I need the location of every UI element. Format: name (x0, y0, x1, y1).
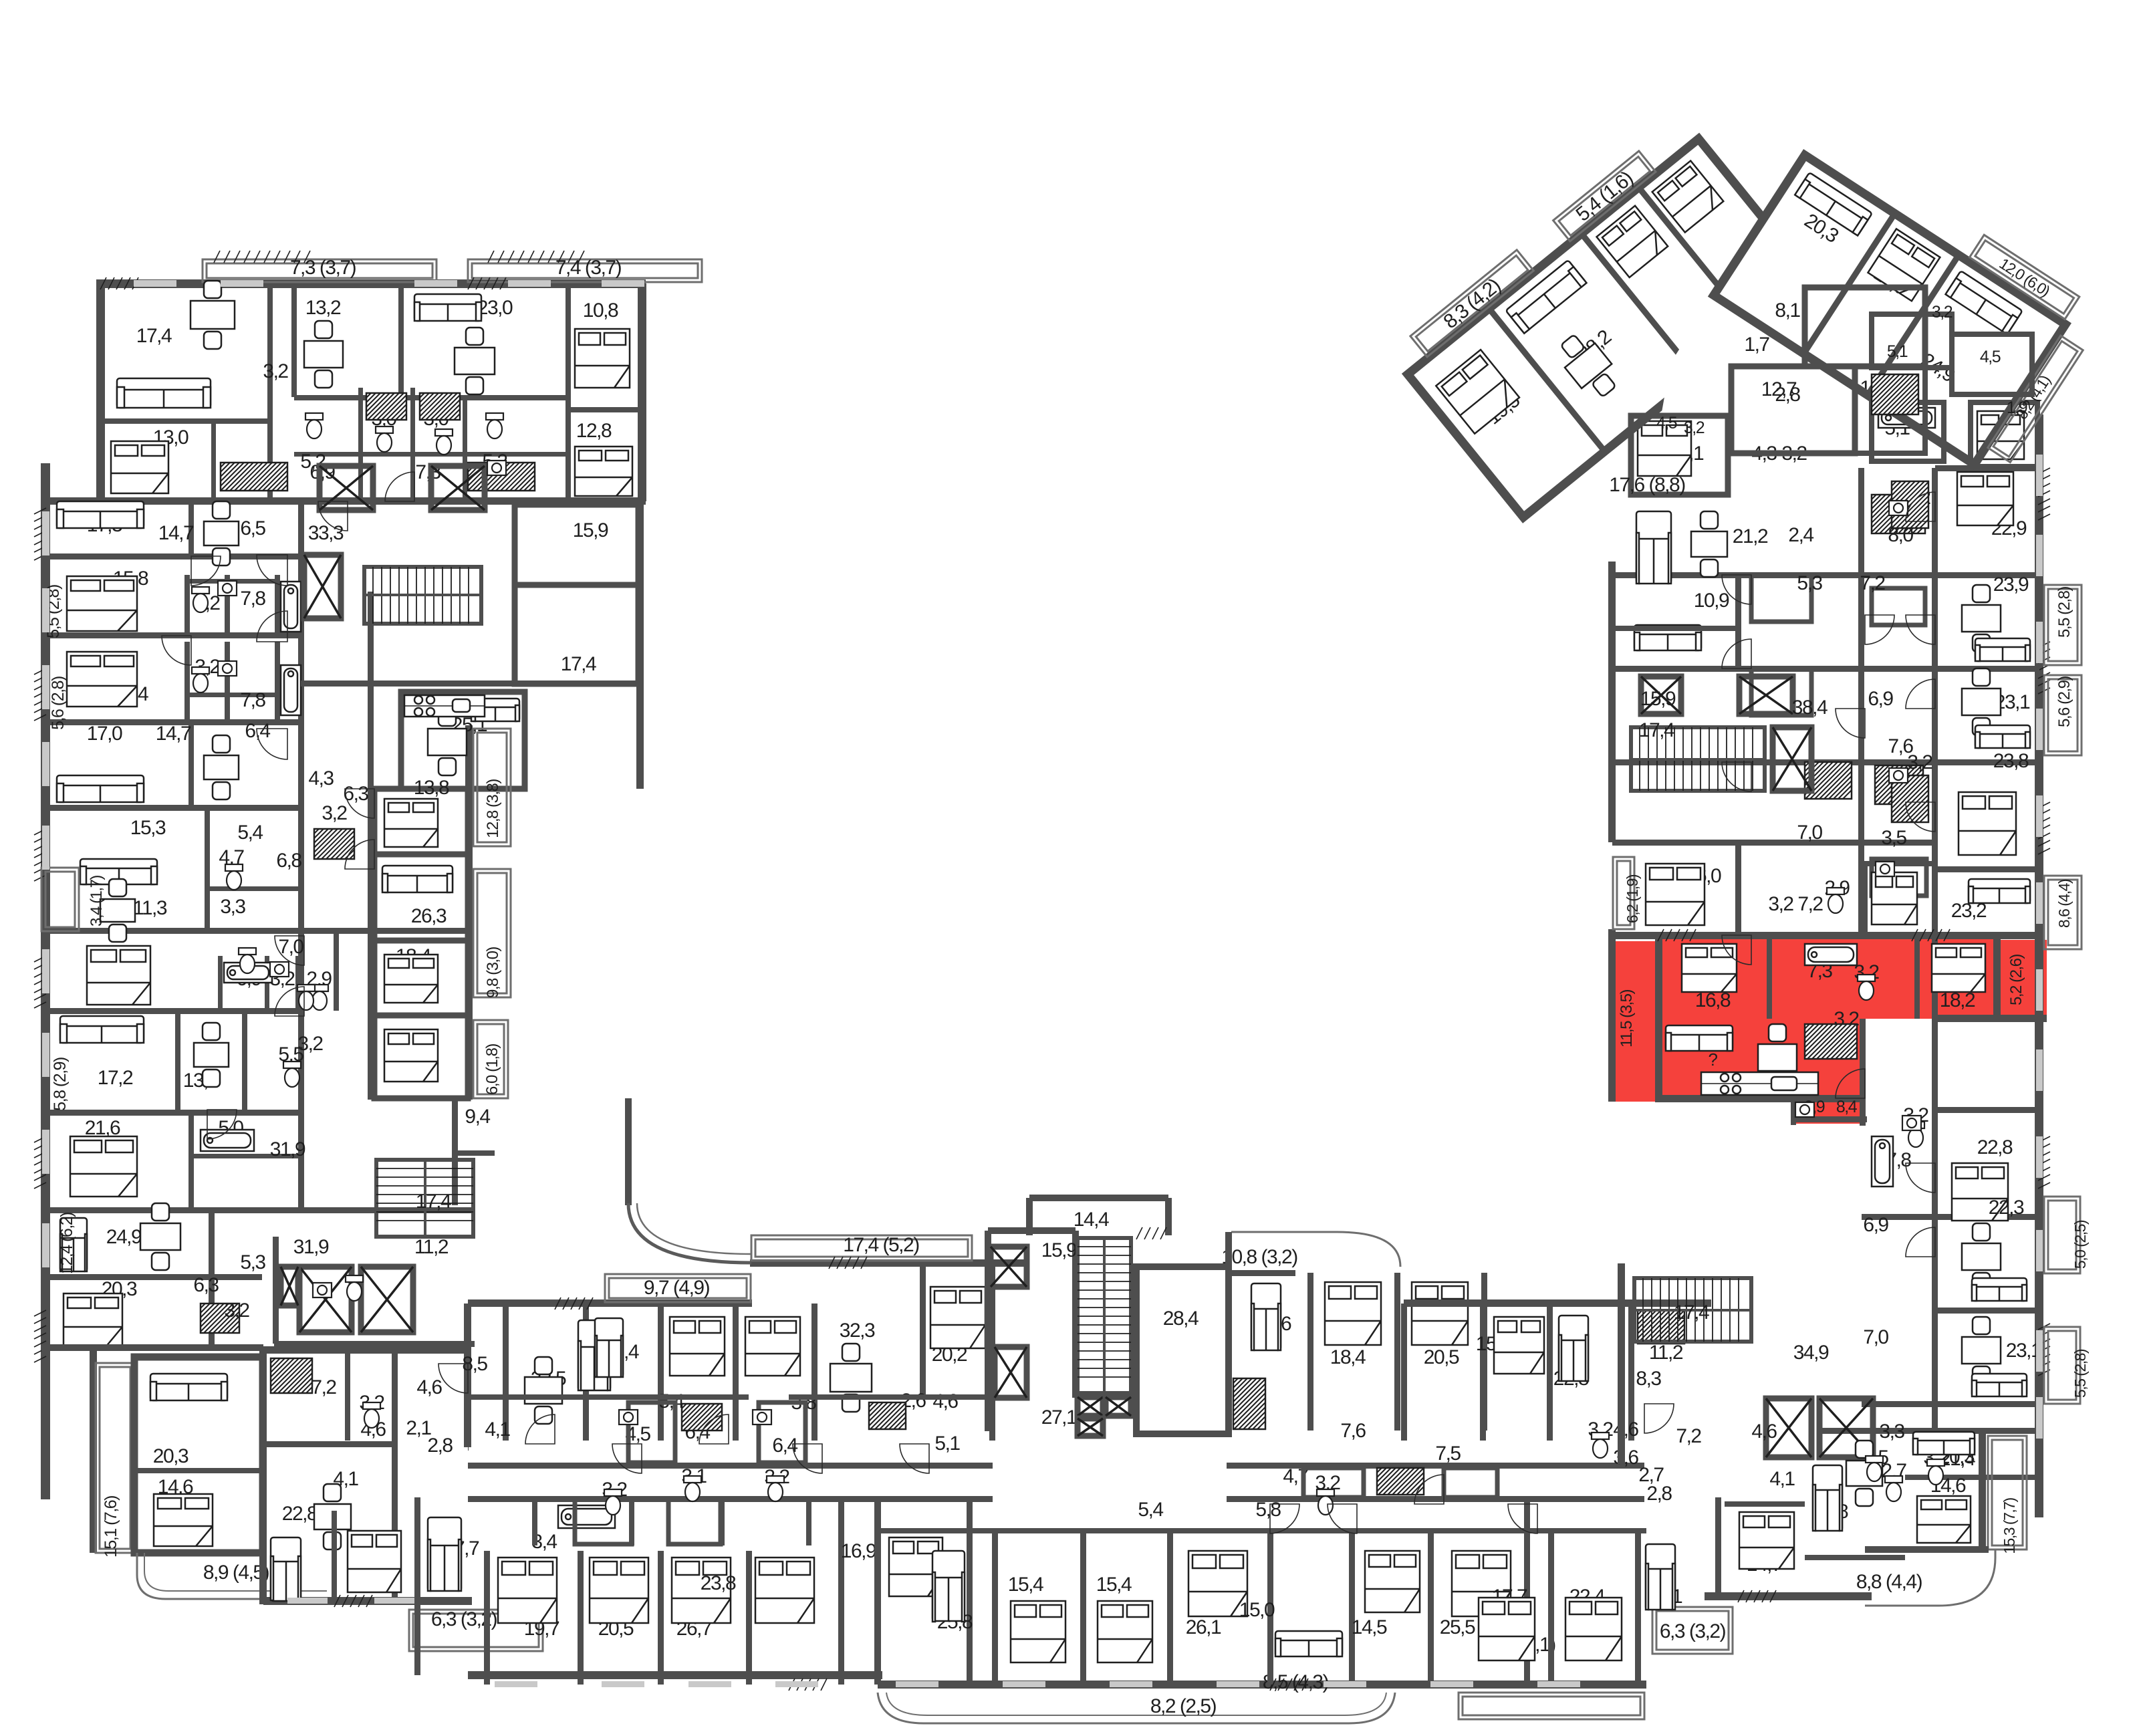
svg-text:10,8 (3,2): 10,8 (3,2) (1221, 1246, 1297, 1268)
svg-text:5,5 (2,8): 5,5 (2,8) (2055, 587, 2073, 638)
svg-text:12,7: 12,7 (1761, 378, 1797, 400)
svg-text:17,6 (8,8): 17,6 (8,8) (1609, 474, 1685, 496)
svg-text:24,9: 24,9 (106, 1226, 142, 1248)
svg-text:23,0: 23,0 (477, 297, 513, 319)
svg-text:5,6 (2,8): 5,6 (2,8) (49, 676, 68, 730)
svg-text:6,8: 6,8 (276, 850, 301, 872)
svg-text:22,8: 22,8 (1977, 1136, 2013, 1158)
svg-text:7,0: 7,0 (1863, 1326, 1888, 1348)
svg-text:5,1: 5,1 (934, 1433, 960, 1455)
svg-text:7,2: 7,2 (311, 1376, 336, 1398)
svg-text:15,3 (7,7): 15,3 (7,7) (2001, 1497, 2018, 1554)
svg-text:5,8: 5,8 (1255, 1499, 1281, 1521)
svg-text:14,4: 14,4 (1074, 1209, 1109, 1231)
svg-text:4,1: 4,1 (333, 1468, 358, 1490)
svg-text:5,3: 5,3 (1797, 572, 1822, 594)
svg-text:4,6: 4,6 (932, 1390, 958, 1412)
svg-text:5,8 (2,9): 5,8 (2,9) (51, 1058, 70, 1111)
svg-text:15,4: 15,4 (1008, 1574, 1043, 1596)
svg-text:6,5: 6,5 (240, 517, 265, 539)
svg-text:8,2 (2,5): 8,2 (2,5) (1150, 1695, 1217, 1717)
svg-text:?: ? (1709, 1049, 1718, 1070)
svg-text:3,2: 3,2 (1907, 751, 1932, 773)
svg-text:7,4 (3,7): 7,4 (3,7) (555, 257, 622, 279)
svg-text:13,8: 13,8 (414, 777, 449, 799)
svg-text:17,2: 17,2 (98, 1067, 133, 1089)
svg-text:8,9 (4,5): 8,9 (4,5) (203, 1562, 269, 1584)
svg-text:9,4: 9,4 (465, 1106, 490, 1128)
svg-text:3,2: 3,2 (1768, 893, 1793, 915)
svg-text:8,0: 8,0 (1888, 524, 1913, 546)
svg-text:4,6: 4,6 (1613, 1418, 1638, 1441)
svg-text:3,2: 3,2 (263, 360, 288, 382)
svg-text:4,5: 4,5 (1656, 414, 1677, 432)
svg-text:17,4: 17,4 (416, 1191, 451, 1213)
svg-text:9,7 (4,9): 9,7 (4,9) (644, 1277, 710, 1299)
svg-text:32,3: 32,3 (840, 1320, 875, 1342)
svg-text:11,5 (3,5): 11,5 (3,5) (1618, 990, 1636, 1047)
svg-text:2,8: 2,8 (427, 1435, 453, 1457)
svg-text:23,9: 23,9 (1993, 574, 2029, 596)
svg-text:8,8 (4,4): 8,8 (4,4) (1856, 1571, 1922, 1593)
svg-text:18,4: 18,4 (1330, 1346, 1366, 1368)
svg-text:4,3: 4,3 (308, 767, 334, 789)
svg-text:12,4 (6,2): 12,4 (6,2) (57, 1213, 76, 1274)
svg-text:7,3 (3,7): 7,3 (3,7) (290, 257, 356, 279)
svg-text:8,1: 8,1 (1775, 299, 1800, 322)
svg-text:11,2: 11,2 (1649, 1342, 1683, 1364)
svg-text:5,4: 5,4 (1138, 1499, 1163, 1521)
svg-text:7,6: 7,6 (1340, 1420, 1366, 1442)
svg-text:5,2 (2,6): 5,2 (2,6) (2007, 955, 2025, 1005)
svg-text:7,0: 7,0 (1797, 822, 1822, 844)
svg-text:15,9: 15,9 (573, 519, 608, 541)
svg-text:23,8: 23,8 (701, 1572, 736, 1594)
svg-text:15,9: 15,9 (1640, 688, 1676, 710)
svg-text:31,9: 31,9 (293, 1236, 329, 1258)
svg-text:20,3: 20,3 (153, 1445, 188, 1467)
svg-text:3,4 (1,7): 3,4 (1,7) (88, 876, 106, 926)
svg-text:8,3: 8,3 (1636, 1368, 1661, 1390)
svg-text:9,8 (3,0): 9,8 (3,0) (484, 947, 502, 998)
svg-text:7,8: 7,8 (240, 588, 265, 610)
svg-text:2,4: 2,4 (1788, 524, 1813, 546)
svg-text:2,8: 2,8 (1646, 1483, 1672, 1505)
svg-text:25,5: 25,5 (1440, 1616, 1475, 1638)
svg-text:3,3: 3,3 (1879, 1420, 1904, 1443)
svg-text:3,2: 3,2 (224, 1299, 249, 1322)
svg-text:3,2: 3,2 (322, 802, 347, 824)
svg-text:17,4: 17,4 (1674, 1301, 1709, 1324)
svg-text:6,0 (1,8): 6,0 (1,8) (483, 1044, 501, 1095)
svg-text:38,4: 38,4 (1792, 697, 1828, 719)
svg-text:15,1 (7,6): 15,1 (7,6) (102, 1496, 120, 1558)
svg-text:15,0: 15,0 (1239, 1599, 1275, 1621)
svg-text:16,9: 16,9 (841, 1540, 876, 1562)
svg-text:5,6 (2,9): 5,6 (2,9) (2055, 676, 2073, 727)
svg-text:26,3: 26,3 (411, 905, 447, 927)
svg-text:3,2: 3,2 (297, 1033, 323, 1055)
svg-text:3,2: 3,2 (1684, 418, 1705, 437)
svg-text:7,2: 7,2 (1676, 1425, 1701, 1447)
svg-text:8,6 (4,4): 8,6 (4,4) (2055, 879, 2073, 928)
svg-text:26,1: 26,1 (1186, 1616, 1221, 1638)
svg-text:23,8: 23,8 (1993, 750, 2029, 772)
svg-text:1,9: 1,9 (2007, 398, 2027, 417)
svg-text:17,4: 17,4 (136, 325, 172, 347)
svg-text:5,3: 5,3 (240, 1251, 265, 1273)
svg-text:4,1: 4,1 (1769, 1468, 1795, 1490)
svg-text:17,4 (5,2): 17,4 (5,2) (843, 1234, 919, 1256)
svg-text:5,1: 5,1 (1887, 342, 1908, 361)
svg-text:12,8 (3,8): 12,8 (3,8) (484, 779, 502, 838)
svg-text:6,9: 6,9 (1868, 688, 1893, 710)
svg-text:20,5: 20,5 (1424, 1346, 1459, 1368)
svg-text:6,3: 6,3 (343, 783, 368, 805)
svg-text:22,3: 22,3 (1989, 1197, 2024, 1219)
svg-text:4,6: 4,6 (416, 1376, 442, 1398)
svg-text:15,3: 15,3 (130, 817, 166, 839)
svg-text:10,8: 10,8 (583, 299, 618, 322)
svg-text:17,0: 17,0 (87, 723, 122, 745)
svg-text:5,0 (2,5): 5,0 (2,5) (2071, 1220, 2089, 1269)
svg-text:15,4: 15,4 (1096, 1574, 1132, 1596)
svg-text:15,9: 15,9 (1041, 1239, 1077, 1261)
svg-text:27,1: 27,1 (1041, 1406, 1077, 1429)
svg-text:7,8: 7,8 (240, 689, 265, 711)
svg-text:6,2 (1,9): 6,2 (1,9) (1624, 874, 1641, 923)
svg-text:7,2: 7,2 (1797, 893, 1823, 915)
svg-text:12,8: 12,8 (576, 420, 612, 442)
svg-text:22,8: 22,8 (282, 1503, 318, 1525)
svg-text:3,2: 3,2 (1932, 303, 1953, 322)
svg-text:6,9: 6,9 (1863, 1214, 1888, 1236)
svg-text:33,3: 33,3 (308, 522, 344, 544)
svg-text:14,7: 14,7 (156, 723, 191, 745)
svg-text:3,3: 3,3 (220, 896, 245, 918)
svg-text:1,7: 1,7 (1744, 334, 1769, 356)
svg-text:17,4: 17,4 (561, 653, 596, 675)
svg-text:13,2: 13,2 (305, 297, 341, 319)
svg-text:14,5: 14,5 (1352, 1616, 1387, 1638)
svg-text:6,4: 6,4 (245, 720, 270, 742)
svg-text:8,4: 8,4 (1836, 1098, 1858, 1116)
svg-text:4,1: 4,1 (485, 1418, 510, 1441)
svg-text:31,9: 31,9 (270, 1138, 305, 1160)
svg-text:7,2: 7,2 (1860, 572, 1885, 594)
svg-text:11,3: 11,3 (133, 897, 167, 919)
svg-text:4,6: 4,6 (1751, 1420, 1777, 1443)
svg-text:17,4: 17,4 (1639, 719, 1674, 741)
svg-text:7,5: 7,5 (1435, 1443, 1461, 1465)
svg-text:3,6: 3,6 (1613, 1447, 1638, 1469)
svg-text:10,9: 10,9 (1694, 590, 1729, 612)
svg-text:5,4: 5,4 (237, 822, 263, 844)
svg-text:6,3 (3,2): 6,3 (3,2) (1660, 1620, 1726, 1642)
svg-text:34,9: 34,9 (1793, 1342, 1829, 1364)
svg-text:3,5: 3,5 (1881, 827, 1906, 849)
svg-text:14,7: 14,7 (158, 522, 194, 544)
svg-text:28,4: 28,4 (1163, 1308, 1199, 1330)
svg-text:11,2: 11,2 (414, 1236, 449, 1258)
svg-text:6,3: 6,3 (193, 1274, 219, 1296)
svg-text:4,5: 4,5 (1980, 348, 2001, 366)
svg-text:5,5 (2,8): 5,5 (2,8) (2071, 1349, 2089, 1398)
svg-text:21,2: 21,2 (1733, 525, 1768, 547)
